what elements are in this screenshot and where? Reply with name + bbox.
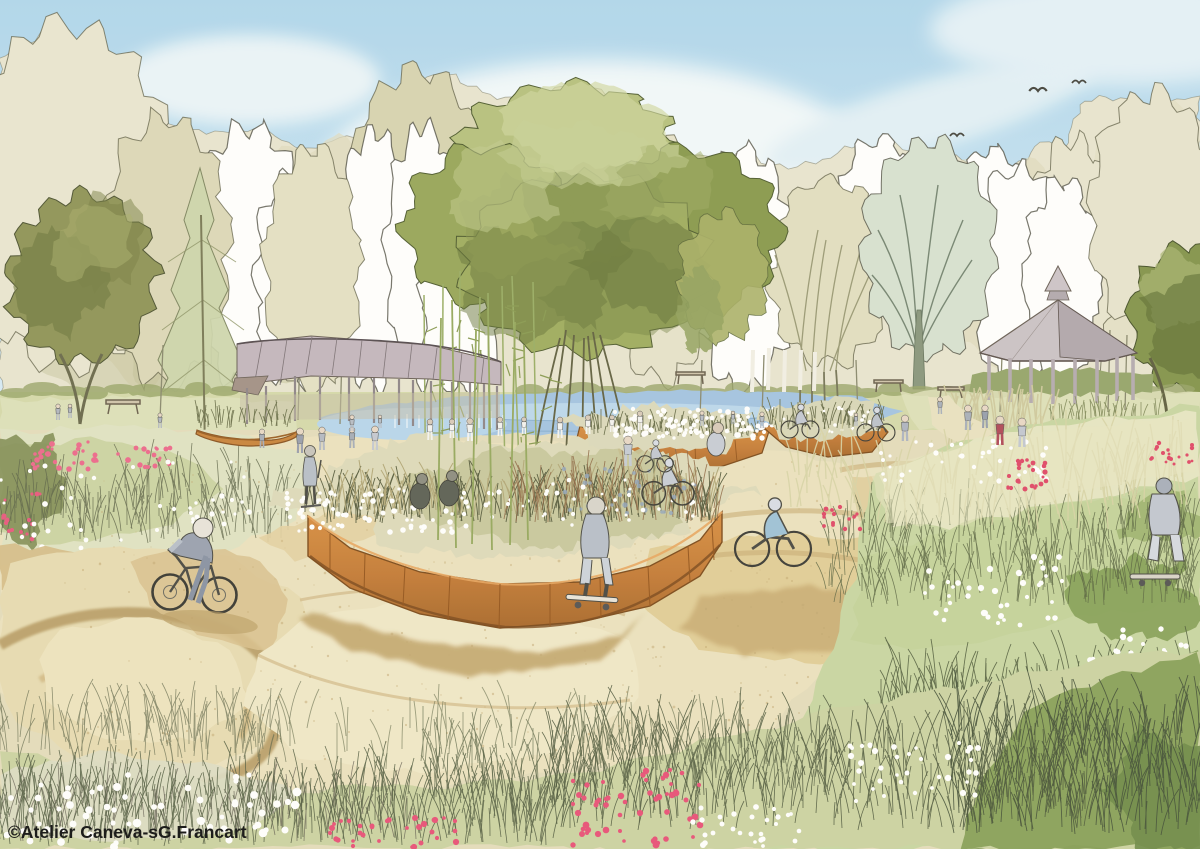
svg-text:©Atelier Caneva-sG.Francart: ©Atelier Caneva-sG.Francart [8,822,247,842]
